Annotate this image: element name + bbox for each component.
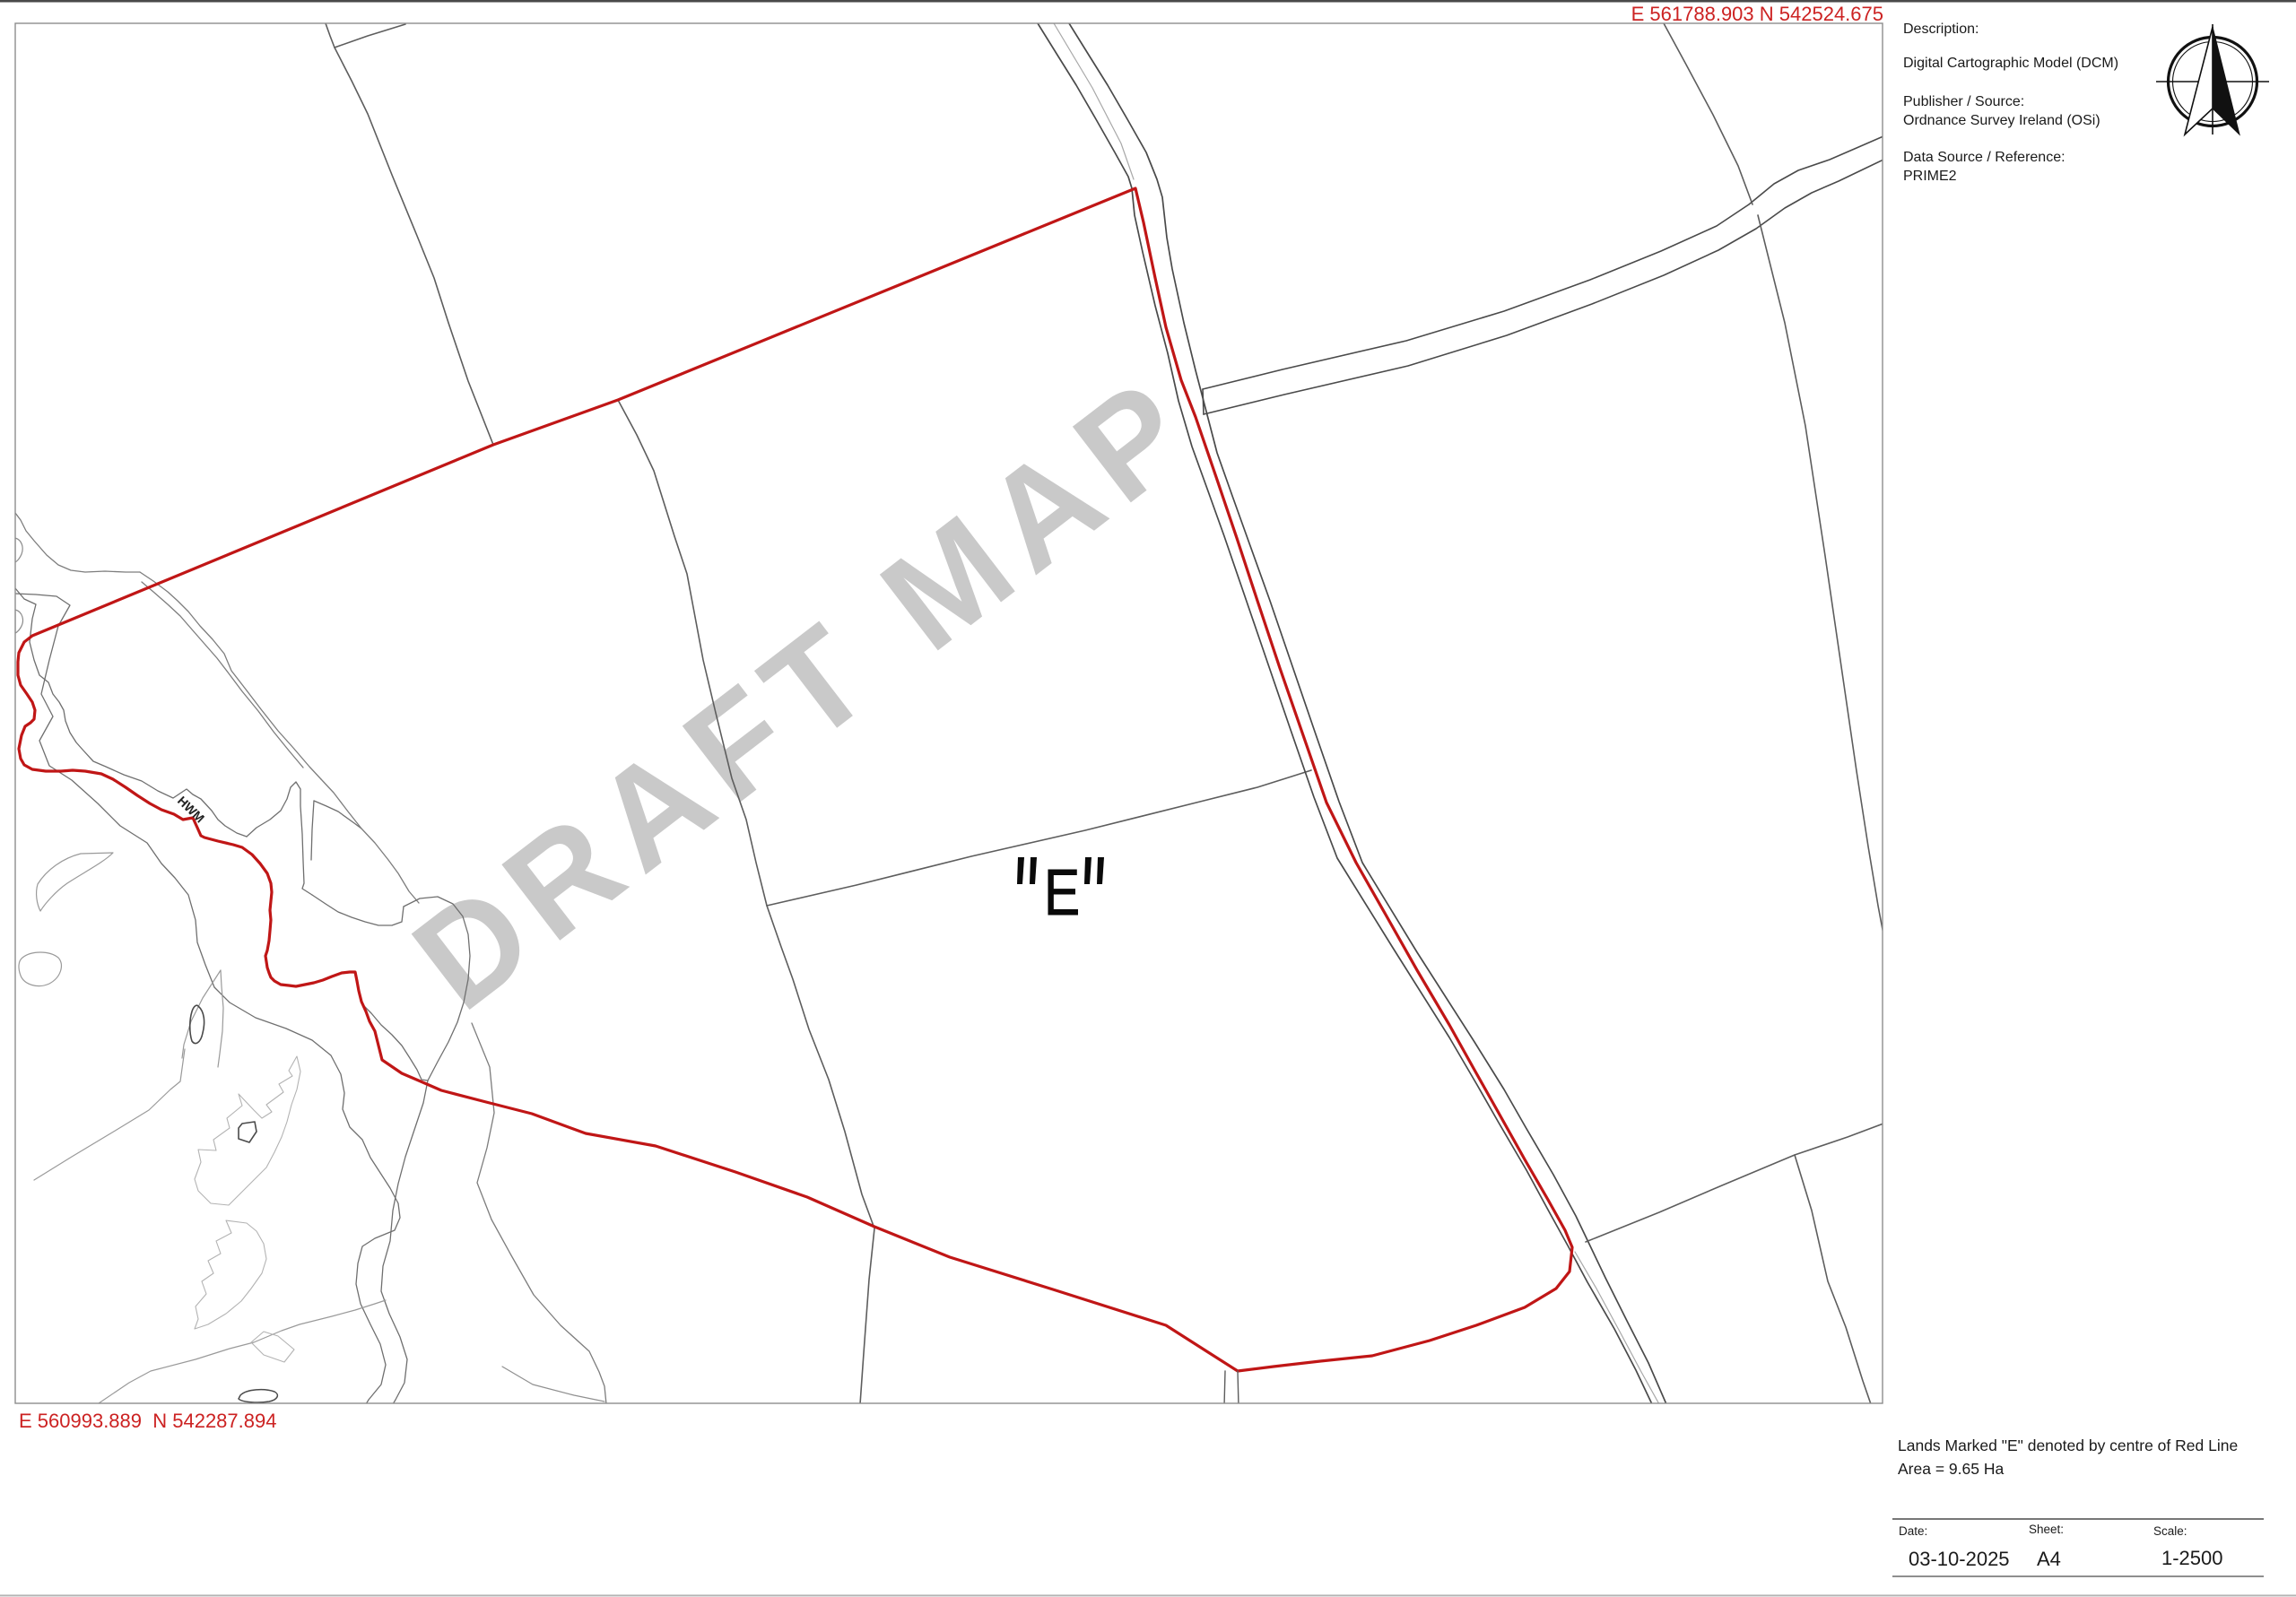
svg-text:1-2500: 1-2500 (2161, 1547, 2223, 1569)
svg-text:E 560993.889 N 542287.894: E 560993.889 N 542287.894 (19, 1410, 276, 1432)
svg-text:Lands Marked "E" denoted by ce: Lands Marked "E" denoted by centre of Re… (1898, 1436, 2238, 1454)
svg-text:Description:: Description: (1903, 22, 1979, 37)
svg-text:Sheet:: Sheet: (2029, 1523, 2064, 1536)
svg-text:A4: A4 (2037, 1548, 2061, 1570)
svg-text:E: E (1044, 857, 1080, 929)
svg-text:Area = 9.65 Ha: Area = 9.65 Ha (1898, 1460, 2004, 1478)
svg-text:E 561788.903 N 542524.675: E 561788.903 N 542524.675 (1631, 3, 1883, 25)
svg-text:03-10-2025: 03-10-2025 (1909, 1548, 2010, 1570)
svg-text:Data Source / Reference:: Data Source / Reference: (1903, 150, 2066, 165)
svg-text:PRIME2: PRIME2 (1903, 169, 1957, 184)
svg-text:Digital Cartographic Model (DC: Digital Cartographic Model (DCM) (1903, 56, 2118, 71)
svg-text:Ordnance Survey Ireland (OSi): Ordnance Survey Ireland (OSi) (1903, 113, 2100, 128)
svg-text:Date:: Date: (1899, 1524, 1927, 1538)
svg-text:Publisher / Source:: Publisher / Source: (1903, 94, 2024, 109)
svg-text:Scale:: Scale: (2153, 1524, 2187, 1538)
